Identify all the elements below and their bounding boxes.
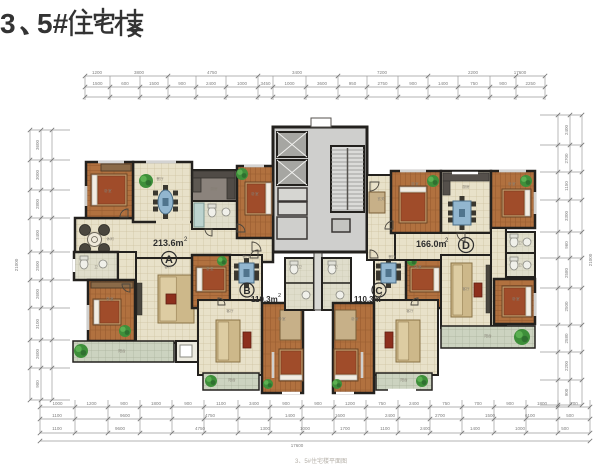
svg-text:900: 900 <box>314 401 322 406</box>
svg-text:6100: 6100 <box>525 413 536 418</box>
svg-text:D: D <box>462 240 470 252</box>
svg-text:900: 900 <box>506 401 514 406</box>
svg-text:21000: 21000 <box>588 253 593 266</box>
svg-text:1000: 1000 <box>284 81 295 86</box>
svg-text:2400: 2400 <box>206 81 217 86</box>
svg-text:1300: 1300 <box>260 426 271 431</box>
svg-text:卧室: 卧室 <box>411 181 419 186</box>
svg-text:1200: 1200 <box>86 401 97 406</box>
svg-text:3400: 3400 <box>292 70 303 75</box>
svg-text:2750: 2750 <box>377 81 388 86</box>
svg-text:900: 900 <box>564 388 569 396</box>
svg-text:9600: 9600 <box>115 426 126 431</box>
svg-text:客厅: 客厅 <box>406 308 414 313</box>
svg-text:213.6m: 213.6m <box>153 238 184 248</box>
svg-text:5#: 5# <box>37 8 69 39</box>
svg-text:4750: 4750 <box>195 426 206 431</box>
svg-text:900: 900 <box>499 81 507 86</box>
svg-text:卧室: 卧室 <box>414 264 422 269</box>
svg-text:1400: 1400 <box>438 81 449 86</box>
svg-text:卫: 卫 <box>94 265 98 269</box>
svg-text:3000: 3000 <box>35 169 40 180</box>
svg-text:3300: 3300 <box>564 210 569 221</box>
svg-text:3600: 3600 <box>317 81 328 86</box>
svg-text:客厅: 客厅 <box>226 308 234 313</box>
svg-text:4750: 4750 <box>205 413 216 418</box>
svg-text:2700: 2700 <box>564 153 569 164</box>
svg-text:2600: 2600 <box>35 348 40 359</box>
svg-text:2500: 2500 <box>35 260 40 271</box>
svg-text:阳台: 阳台 <box>400 377 408 382</box>
svg-text:卫: 卫 <box>298 265 302 269</box>
svg-text:2700: 2700 <box>435 413 446 418</box>
svg-text:1500: 1500 <box>485 413 496 418</box>
svg-text:卧室: 卧室 <box>106 296 114 301</box>
svg-text:2400: 2400 <box>385 413 396 418</box>
svg-text:3450: 3450 <box>260 81 271 86</box>
svg-text:卫: 卫 <box>334 265 338 269</box>
svg-text:1200: 1200 <box>92 70 103 75</box>
svg-text:阳台: 阳台 <box>228 377 236 382</box>
svg-text:阳台: 阳台 <box>484 333 492 338</box>
svg-text:厨房: 厨房 <box>210 186 218 191</box>
svg-text:2200: 2200 <box>564 360 569 371</box>
svg-text:750: 750 <box>442 401 450 406</box>
svg-text:1000: 1000 <box>237 81 248 86</box>
svg-text:卧室: 卧室 <box>206 266 214 271</box>
svg-text:900: 900 <box>120 401 128 406</box>
svg-text:500: 500 <box>566 413 574 418</box>
svg-text:1400: 1400 <box>285 413 296 418</box>
svg-text:2800: 2800 <box>35 198 40 209</box>
svg-text:21000: 21000 <box>14 258 19 271</box>
svg-text:750: 750 <box>470 81 478 86</box>
svg-text:2200: 2200 <box>468 70 479 75</box>
svg-text:700: 700 <box>474 401 482 406</box>
svg-text:3800: 3800 <box>134 70 145 75</box>
svg-text:卫: 卫 <box>518 241 522 245</box>
svg-text:1000: 1000 <box>300 426 311 431</box>
svg-text:950: 950 <box>349 81 357 86</box>
svg-text:2400: 2400 <box>420 426 431 431</box>
svg-text:1500: 1500 <box>149 81 160 86</box>
svg-text:1500: 1500 <box>92 81 103 86</box>
svg-text:3400: 3400 <box>249 401 260 406</box>
svg-text:7200: 7200 <box>377 70 388 75</box>
svg-text:900: 900 <box>282 401 290 406</box>
svg-text:1100: 1100 <box>380 426 390 431</box>
svg-text:166.0m: 166.0m <box>416 239 447 249</box>
svg-text:3600: 3600 <box>35 139 40 150</box>
svg-text:3100: 3100 <box>35 318 40 329</box>
svg-text:餐厅: 餐厅 <box>156 176 164 181</box>
svg-text:2400: 2400 <box>409 401 420 406</box>
svg-text:1700: 1700 <box>340 426 351 431</box>
svg-text:2580: 2580 <box>564 333 569 344</box>
svg-text:2: 2 <box>278 293 281 299</box>
svg-text:500: 500 <box>561 426 569 431</box>
svg-text:2580: 2580 <box>564 267 569 278</box>
svg-text:3、5#住宅楼平面图: 3、5#住宅楼平面图 <box>295 457 347 465</box>
svg-text:餐厅: 餐厅 <box>242 254 250 259</box>
svg-text:960: 960 <box>564 241 569 249</box>
svg-text:卫: 卫 <box>518 263 522 267</box>
svg-text:900: 900 <box>178 81 186 86</box>
svg-text:2400: 2400 <box>564 124 569 135</box>
svg-text:1000: 1000 <box>52 401 63 406</box>
svg-text:1200: 1200 <box>345 401 356 406</box>
svg-text:600: 600 <box>121 81 129 86</box>
svg-text:卧室: 卧室 <box>508 181 516 186</box>
svg-text:卧室: 卧室 <box>104 188 112 193</box>
svg-text:110.3m: 110.3m <box>251 295 278 304</box>
svg-text:9600: 9600 <box>120 413 131 418</box>
svg-text:4750: 4750 <box>207 70 218 75</box>
svg-text:3400: 3400 <box>35 229 40 240</box>
svg-text:玄关: 玄关 <box>377 196 385 201</box>
svg-text:餐厅: 餐厅 <box>388 254 396 259</box>
svg-text:1600: 1600 <box>335 413 346 418</box>
svg-text:卧室: 卧室 <box>278 316 286 321</box>
svg-text:1000: 1000 <box>515 426 526 431</box>
svg-text:900: 900 <box>409 81 417 86</box>
svg-text:卧室: 卧室 <box>512 296 520 301</box>
svg-text:1400: 1400 <box>470 426 481 431</box>
svg-text:2250: 2250 <box>525 81 536 86</box>
svg-text:客厅: 客厅 <box>164 264 172 269</box>
svg-text:1100: 1100 <box>216 401 226 406</box>
svg-text:卧室: 卧室 <box>351 316 359 321</box>
svg-text:休闲: 休闲 <box>106 236 114 241</box>
svg-text:C: C <box>375 286 382 297</box>
svg-text:1150: 1150 <box>564 181 569 191</box>
svg-text:17600: 17600 <box>291 443 304 448</box>
svg-text:卧室: 卧室 <box>251 191 259 196</box>
svg-text:17600: 17600 <box>514 70 527 75</box>
svg-text:1100: 1100 <box>52 426 62 431</box>
svg-text:900: 900 <box>184 401 192 406</box>
svg-text:B: B <box>243 286 250 297</box>
svg-text:2500: 2500 <box>564 301 569 312</box>
svg-text:1800: 1800 <box>151 401 162 406</box>
svg-text:1100: 1100 <box>52 413 62 418</box>
svg-text:750: 750 <box>378 401 386 406</box>
svg-text:2600: 2600 <box>35 288 40 299</box>
svg-text:900: 900 <box>35 380 40 388</box>
svg-text:客厅: 客厅 <box>462 286 470 291</box>
svg-text:厨房: 厨房 <box>462 184 470 189</box>
svg-text:阳台: 阳台 <box>118 348 126 353</box>
svg-text:3: 3 <box>0 8 16 39</box>
